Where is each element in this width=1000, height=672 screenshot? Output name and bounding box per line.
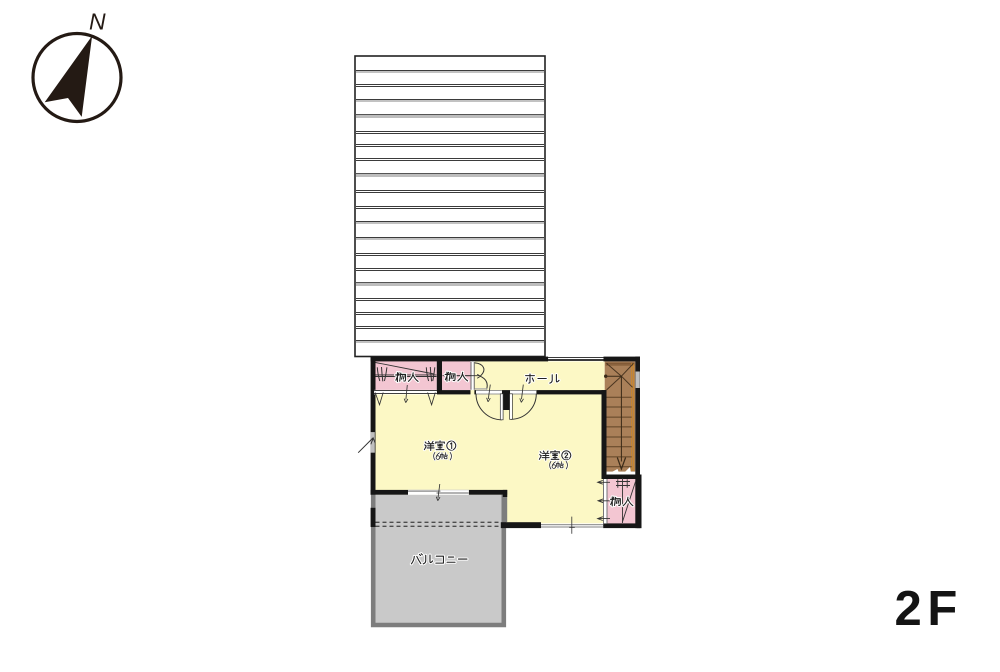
svg-text:N: N: [89, 9, 106, 35]
svg-text:2 F: 2 F: [895, 582, 957, 636]
